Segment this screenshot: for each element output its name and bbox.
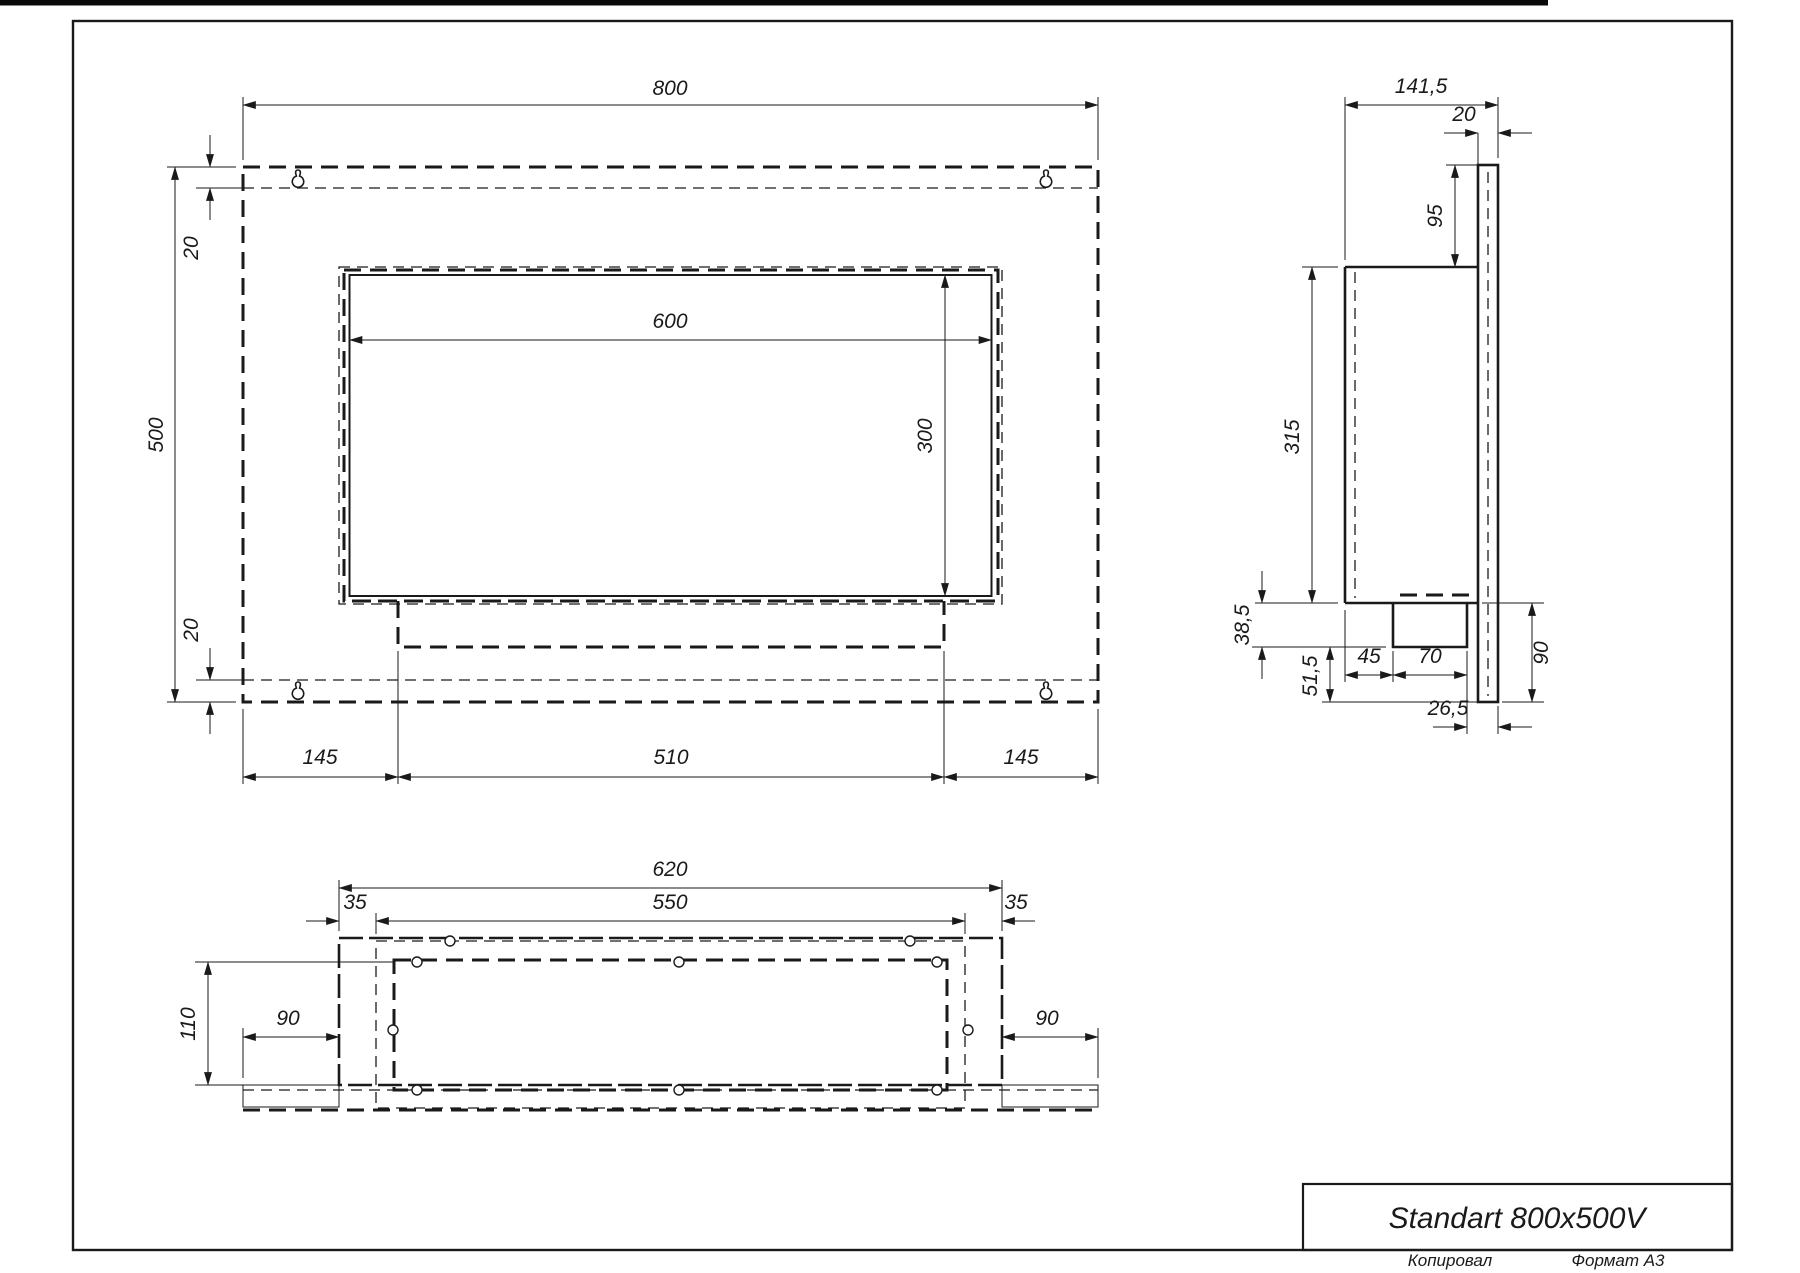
dim-front-width: 800: [652, 77, 687, 100]
technical-drawing: 800 500 20 20 600 300 145 510 145: [0, 0, 1800, 1273]
keyhole-icon: [292, 170, 303, 187]
bottom-right-wing: [1002, 1085, 1098, 1107]
screw-hole: [388, 1025, 398, 1035]
dim-depth-bottom: 110: [177, 1007, 200, 1041]
dim-box-width: 620: [652, 858, 687, 881]
dim-tray-width: 510: [653, 746, 688, 769]
dim-plate-thickness: 20: [1451, 103, 1476, 126]
screw-hole: [412, 957, 422, 967]
front-body-outline: [243, 167, 1098, 702]
dim-tray-depth: 70: [1418, 645, 1442, 668]
dim-left-inset: 35: [343, 891, 367, 914]
dim-insert-width: 550: [652, 891, 687, 914]
bottom-insert-hidden-inner: [394, 960, 947, 1090]
dim-opening-height: 300: [914, 418, 937, 453]
front-view: 800 500 20 20 600 300 145 510 145: [145, 77, 1098, 784]
dim-front-to-tray: 45: [1357, 645, 1381, 668]
dim-box-height: 315: [1281, 419, 1304, 454]
sheet-border: [73, 21, 1732, 1250]
keyhole-icon: [292, 682, 303, 699]
dim-tray-height: 38,5: [1231, 604, 1254, 645]
dim-right-inset: 35: [1004, 891, 1028, 914]
scan-top-bar: [0, 0, 1548, 6]
screw-hole: [963, 1025, 973, 1035]
side-tray: [1393, 603, 1467, 647]
dim-right-wing: 90: [1035, 1007, 1059, 1030]
bottom-left-wing: [243, 1085, 339, 1107]
dim-left-wing: 90: [276, 1007, 300, 1030]
screw-hole: [932, 1085, 942, 1095]
dim-depth: 141,5: [1395, 75, 1448, 98]
dim-right-margin: 145: [1003, 746, 1038, 769]
dim-front-bottom-gap: 20: [180, 618, 203, 643]
dim-front-top-gap: 20: [180, 236, 203, 261]
screw-hole: [445, 936, 455, 946]
dim-front-height: 500: [145, 417, 168, 452]
dim-plate-top-to-box: 95: [1424, 204, 1447, 228]
dim-tray-to-plate-bottom: 51,5: [1299, 655, 1322, 696]
copied-label: Копировал: [1408, 1251, 1493, 1270]
title-block: Standart 800x500V Копировал Формат А3: [1303, 1184, 1732, 1270]
keyhole-icon: [1040, 682, 1051, 699]
drawing-title: Standart 800x500V: [1389, 1202, 1649, 1235]
dim-opening-width: 600: [652, 310, 687, 333]
format-label: Формат А3: [1571, 1251, 1665, 1270]
bottom-insert-hidden-outer: [376, 941, 965, 1108]
screw-hole: [674, 1085, 684, 1095]
dim-tray-to-wall: 26,5: [1427, 697, 1469, 720]
screw-hole: [412, 1085, 422, 1095]
dim-plate-below-box: 90: [1530, 641, 1553, 665]
drawing-sheet: 800 500 20 20 600 300 145 510 145: [0, 0, 1800, 1273]
keyhole-icon: [1040, 170, 1051, 187]
dim-left-margin: 145: [302, 746, 337, 769]
side-view: 141,5 20 95 315 38,5 51,5 45 70: [1231, 75, 1553, 734]
screw-hole: [932, 957, 942, 967]
screw-hole: [674, 957, 684, 967]
screw-hole: [905, 936, 915, 946]
bottom-view: 620 550 35 35 110 90 90: [177, 858, 1098, 1110]
front-tray: [398, 601, 944, 647]
